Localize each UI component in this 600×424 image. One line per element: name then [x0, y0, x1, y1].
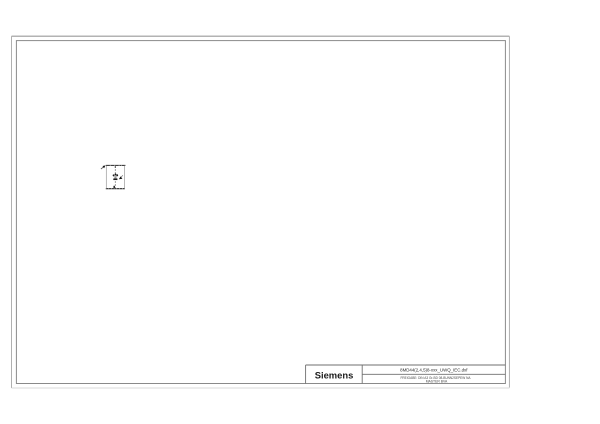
svg-text:Siemens: Siemens — [315, 370, 354, 381]
svg-text:8MD44(2,4,5)8-xxx_UWQ_IEC.dxf: 8MD44(2,4,5)8-xxx_UWQ_IEC.dxf — [400, 368, 468, 373]
svg-text:MASTER BVA: MASTER BVA — [426, 379, 448, 383]
